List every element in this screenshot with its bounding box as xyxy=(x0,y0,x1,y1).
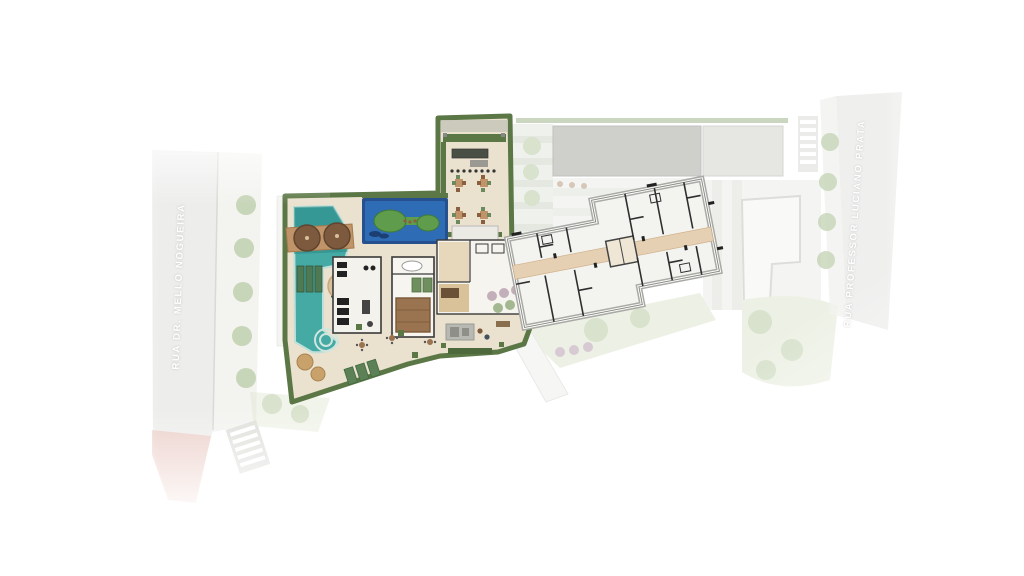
spa xyxy=(392,257,434,337)
red-paving xyxy=(152,430,211,503)
garden-stripes xyxy=(512,124,553,246)
massage-bed xyxy=(412,278,421,292)
tree-icon xyxy=(584,318,608,342)
tree-icon xyxy=(262,394,282,414)
street-tree-icon xyxy=(817,251,835,269)
street-tree-icon xyxy=(818,213,836,231)
planter-icon xyxy=(499,342,504,347)
street-tree-icon xyxy=(821,133,839,151)
shrub-icon xyxy=(583,342,593,352)
street-tree-icon xyxy=(236,195,256,215)
amenity-deck xyxy=(277,116,541,402)
umbrella-icon xyxy=(311,367,325,381)
party-counter xyxy=(452,149,488,158)
tree-icon xyxy=(523,164,539,180)
neighbor-roof-light xyxy=(703,126,783,176)
pedestrian-crosswalk xyxy=(226,420,271,474)
tree-icon xyxy=(523,137,541,155)
neighbor-roof-dark xyxy=(553,126,701,176)
site-plan-drawing xyxy=(0,0,1024,576)
lobby-room xyxy=(439,242,469,282)
cabinet xyxy=(441,288,459,298)
street-tree-icon xyxy=(232,326,252,346)
bench xyxy=(496,321,510,327)
pool-loungers xyxy=(297,266,322,292)
tree-icon xyxy=(756,360,776,380)
site-plan-canvas: RUA DR. MELLO NOGUEIRA RUA PROFESSOR LUC… xyxy=(0,0,1024,576)
umbrella-icon xyxy=(297,354,313,370)
massage-bed xyxy=(423,278,432,292)
planter-icon xyxy=(441,343,446,348)
planter-icon xyxy=(398,330,404,336)
lobby-canopy xyxy=(452,226,498,241)
party-bar xyxy=(470,160,488,167)
pool-lounger xyxy=(379,234,389,239)
pedestrian-crosswalk-right xyxy=(798,116,818,172)
pot-icon xyxy=(484,334,489,339)
leisure-pool xyxy=(362,193,448,244)
gravel-strip xyxy=(441,120,508,132)
street-tree-icon xyxy=(236,368,256,388)
planter-icon xyxy=(356,324,362,330)
hedge-strip xyxy=(448,348,492,354)
gym xyxy=(333,257,381,333)
terrace-hedge xyxy=(443,134,506,142)
context-hedge-line xyxy=(516,118,788,123)
planter-icon xyxy=(412,352,418,358)
shrub-icon xyxy=(555,347,565,357)
pot-icon xyxy=(477,328,482,333)
tree-icon xyxy=(524,190,540,206)
sauna xyxy=(396,298,430,332)
tree-icon xyxy=(781,339,803,361)
tree-icon xyxy=(748,310,772,334)
tree-icon xyxy=(291,405,309,423)
shrub-icon xyxy=(569,345,579,355)
tree-icon xyxy=(630,308,650,328)
spa-tub xyxy=(402,261,422,271)
street-tree-icon xyxy=(233,282,253,302)
street-tree-icon xyxy=(234,238,254,258)
street-tree-icon xyxy=(819,173,837,191)
